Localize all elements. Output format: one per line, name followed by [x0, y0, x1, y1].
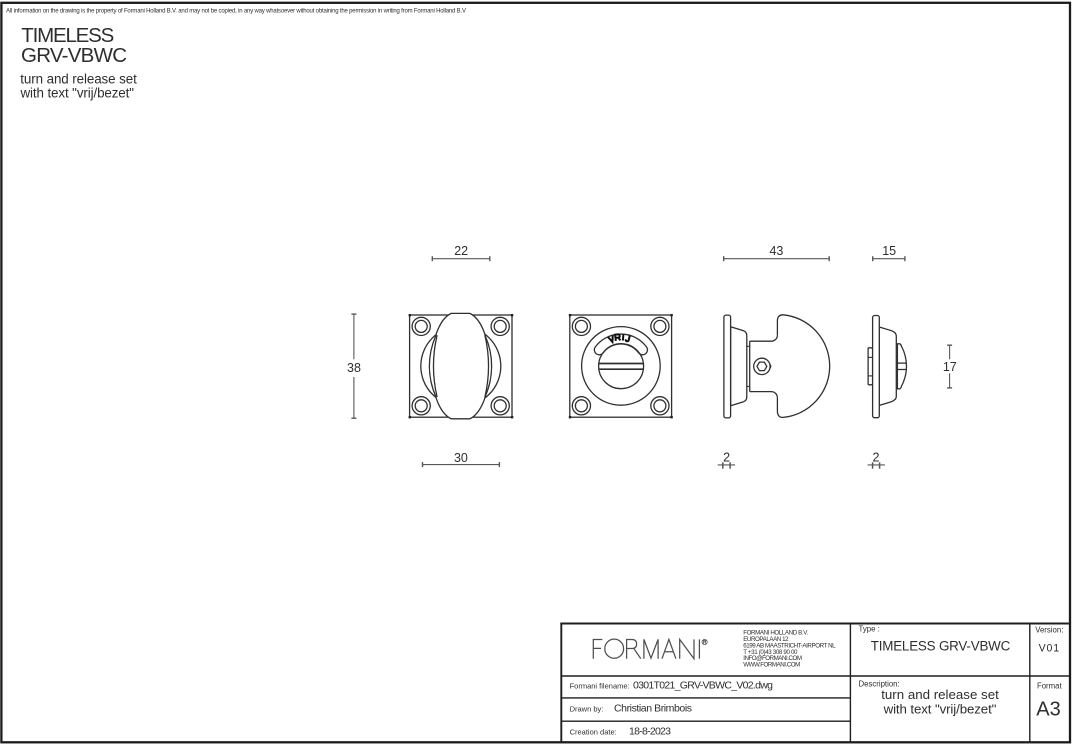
svg-text:with text "vrij/bezet": with text "vrij/bezet" — [883, 702, 997, 717]
svg-text:TIMELESS GRV-VBWC: TIMELESS GRV-VBWC — [871, 638, 1011, 653]
svg-text:2: 2 — [873, 450, 880, 464]
svg-text:turn and release set: turn and release set — [881, 687, 999, 702]
svg-text:43: 43 — [769, 244, 783, 258]
svg-text:2: 2 — [723, 450, 730, 464]
svg-text:GRV-VBWC: GRV-VBWC — [21, 44, 127, 67]
svg-text:turn and release set: turn and release set — [20, 71, 137, 86]
svg-text:22: 22 — [454, 244, 468, 258]
svg-text:All information on the drawing: All information on the drawing is the pr… — [6, 8, 466, 14]
svg-text:WWW.FORMANI.COM: WWW.FORMANI.COM — [743, 662, 800, 669]
svg-text:38: 38 — [347, 361, 361, 375]
svg-text:Christian Brimbois: Christian Brimbois — [614, 703, 692, 715]
svg-text:30: 30 — [454, 451, 468, 465]
svg-text:17: 17 — [943, 360, 957, 374]
svg-text:with text "vrij/bezet": with text "vrij/bezet" — [20, 86, 135, 101]
svg-text:15: 15 — [882, 244, 896, 258]
svg-text:Creation date:: Creation date: — [570, 727, 617, 736]
svg-text:A3: A3 — [1036, 699, 1060, 721]
svg-text:Type :: Type : — [859, 625, 880, 634]
svg-text:Drawn by:: Drawn by: — [570, 705, 604, 714]
svg-text:18-8-2023: 18-8-2023 — [629, 725, 671, 737]
svg-text:Format: Format — [1037, 682, 1063, 691]
svg-text:0301T021_GRV-VBWC_V02.dwg: 0301T021_GRV-VBWC_V02.dwg — [633, 680, 773, 692]
svg-text:Version:: Version: — [1035, 625, 1063, 634]
svg-text:Formani filename:: Formani filename: — [570, 682, 630, 691]
svg-text:V01: V01 — [1039, 643, 1060, 655]
